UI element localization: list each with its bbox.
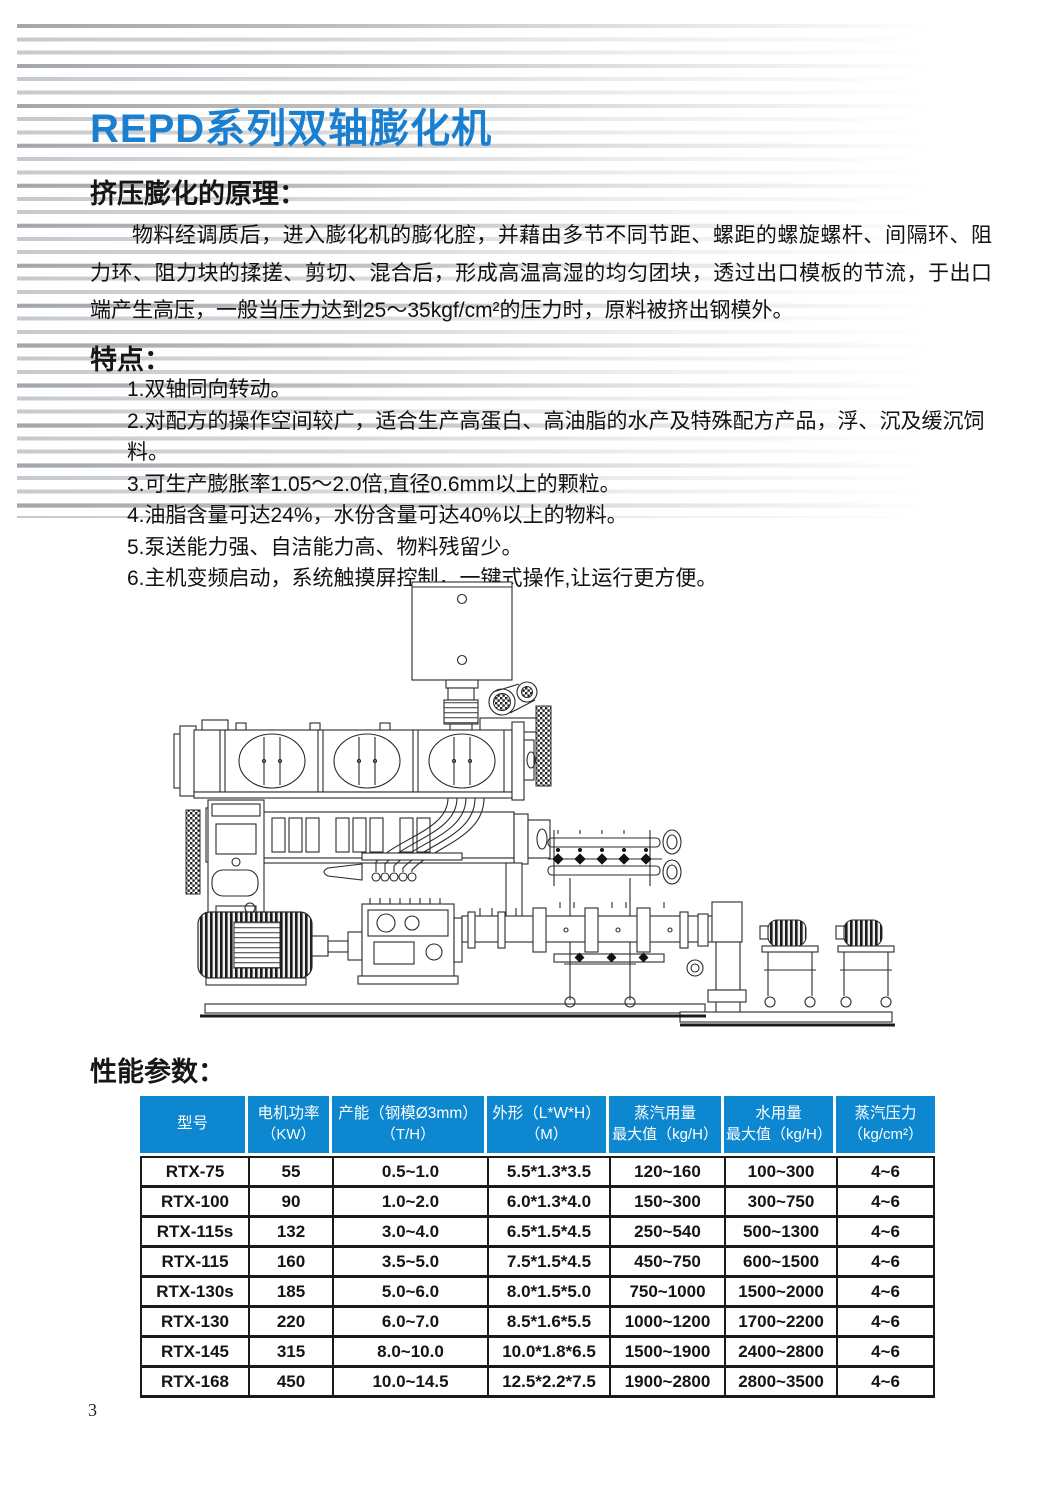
cell-model: RTX-130s	[140, 1278, 248, 1308]
feature-item: 1.双轴同向转动。	[127, 374, 987, 406]
cell-model: RTX-75	[140, 1156, 248, 1188]
feature-item: 4.油脂含量可达24%，水份含量可达40%以上的物料。	[127, 500, 987, 532]
feature-list: 1.双轴同向转动。 2.对配方的操作空间较广，适合生产高蛋白、高油脂的水产及特殊…	[127, 374, 987, 595]
cell-model: RTX-115s	[140, 1218, 248, 1248]
table-row: RTX-115 160 3.5~5.0 7.5*1.5*4.5 450~750 …	[140, 1248, 935, 1278]
cell-model: RTX-168	[140, 1368, 248, 1398]
col-header-motor-power: 电机功率（KW）	[248, 1096, 332, 1156]
col-header-steam-usage: 蒸汽用量最大值（kg/H）	[609, 1096, 724, 1156]
performance-parameters-table: 型号 电机功率（KW） 产能（钢模Ø3mm）（T/H） 外形（L*W*H）（M）…	[140, 1096, 935, 1398]
table-header-row: 型号 电机功率（KW） 产能（钢模Ø3mm）（T/H） 外形（L*W*H）（M）…	[140, 1096, 935, 1156]
col-header-capacity: 产能（钢模Ø3mm）（T/H）	[332, 1096, 487, 1156]
feature-item: 5.泵送能力强、自洁能力高、物料残留少。	[127, 532, 987, 564]
machine-technical-drawing	[150, 572, 910, 1040]
col-header-model: 型号	[140, 1096, 248, 1156]
col-header-water-usage: 水用量最大值（kg/H）	[724, 1096, 836, 1156]
feature-item: 2.对配方的操作空间较广，适合生产高蛋白、高油脂的水产及特殊配方产品，浮、沉及缓…	[127, 406, 987, 469]
table-row: RTX-168 450 10.0~14.5 12.5*2.2*7.5 1900~…	[140, 1368, 935, 1398]
page-number: 3	[88, 1400, 97, 1421]
table-row: RTX-75 55 0.5~1.0 5.5*1.3*3.5 120~160 10…	[140, 1156, 935, 1188]
principle-body-text: 物料经调质后，进入膨化机的膨化腔，并藉由多节不同节距、螺距的螺旋螺杆、间隔环、阻…	[90, 217, 992, 330]
page-title: REPD系列双轴膨化机	[90, 96, 492, 154]
col-header-steam-pressure: 蒸汽压力（kg/cm²）	[836, 1096, 935, 1156]
table-row: RTX-145 315 8.0~10.0 10.0*1.8*6.5 1500~1…	[140, 1338, 935, 1368]
table-row: RTX-115s 132 3.0~4.0 6.5*1.5*4.5 250~540…	[140, 1218, 935, 1248]
cell-model: RTX-145	[140, 1338, 248, 1368]
cell-model: RTX-115	[140, 1248, 248, 1278]
cell-model: RTX-130	[140, 1308, 248, 1338]
features-section-heading: 特点：	[90, 338, 171, 377]
table-row: RTX-130 220 6.0~7.0 8.5*1.6*5.5 1000~120…	[140, 1308, 935, 1338]
principle-section-heading: 挤压膨化的原理：	[90, 172, 306, 211]
table-row: RTX-130s 185 5.0~6.0 8.0*1.5*5.0 750~100…	[140, 1278, 935, 1308]
parameters-section-heading: 性能参数：	[90, 1050, 225, 1089]
cell-model: RTX-100	[140, 1188, 248, 1218]
table-row: RTX-100 90 1.0~2.0 6.0*1.3*4.0 150~300 3…	[140, 1188, 935, 1218]
col-header-dimensions: 外形（L*W*H）（M）	[487, 1096, 609, 1156]
feature-item: 3.可生产膨胀率1.05～2.0倍,直径0.6mm以上的颗粒。	[127, 469, 987, 501]
